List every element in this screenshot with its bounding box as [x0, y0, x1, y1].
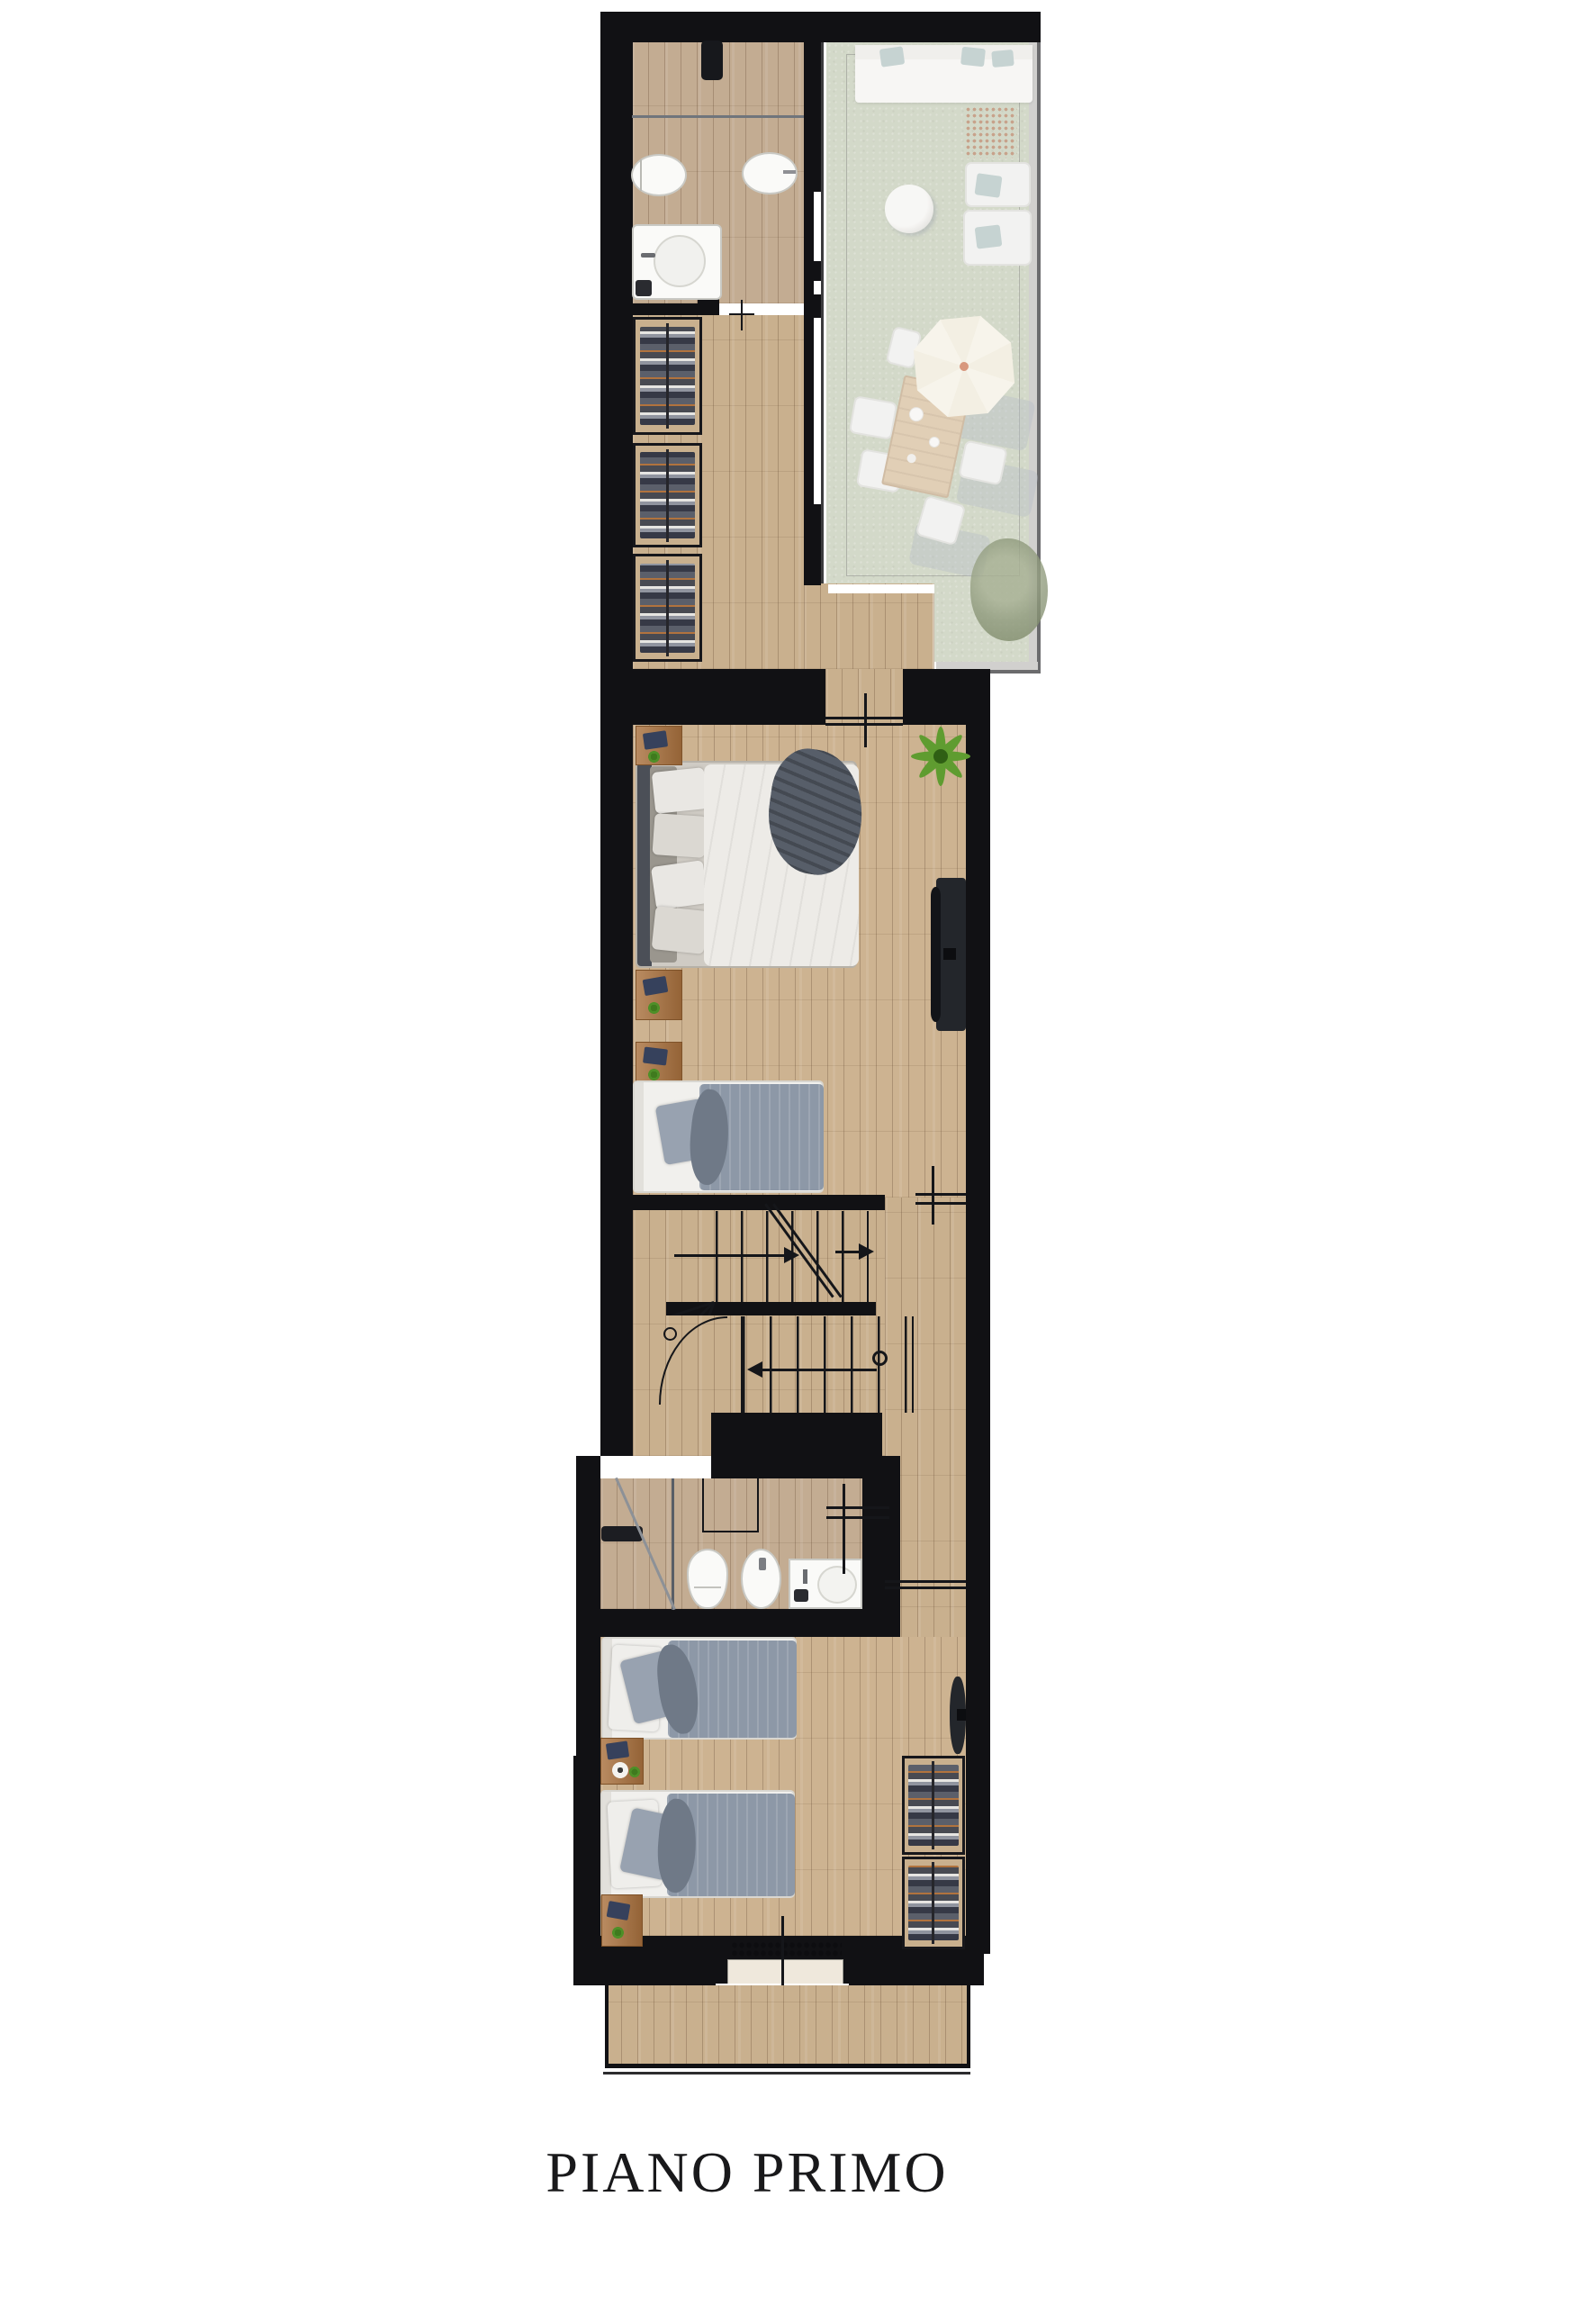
bidet-bottom-tap — [759, 1558, 766, 1570]
sink-top-basin — [654, 235, 706, 287]
wall-left-upper — [600, 12, 633, 723]
single-bed-mid — [633, 1080, 824, 1193]
radiator — [731, 1941, 842, 1958]
glazing-segment-3 — [814, 318, 821, 504]
double-bed-pillow-2 — [652, 813, 707, 858]
nightstand-2 — [636, 970, 682, 1020]
tv-bracket-bedroom2 — [957, 1709, 966, 1721]
nightstand-1 — [636, 726, 682, 765]
balcony-edge-right — [967, 1985, 970, 2068]
single-bed-a — [601, 1637, 797, 1740]
terrace-bush — [970, 538, 1048, 641]
balcony-floor — [605, 1985, 970, 2068]
window-right-line-1 — [885, 1580, 966, 1583]
page-title: PIANO PRIMO — [378, 2139, 1116, 2206]
wall-bathroom-divider-post — [698, 298, 719, 315]
dim-landing-h1 — [915, 1193, 966, 1196]
stairs-winder-fan — [633, 1211, 716, 1315]
dim-bedroom-door-h1 — [825, 717, 903, 719]
bidet-bottom-icon — [741, 1549, 781, 1609]
sink-top-soap — [636, 280, 652, 296]
bath2-shower-glass-v — [672, 1478, 674, 1610]
wardrobe-5-rail — [932, 1862, 934, 1944]
balcony-edge-bottom — [605, 2064, 970, 2068]
glazing-segment-1 — [814, 192, 821, 261]
wall-bath2-bottom — [600, 1609, 900, 1637]
glazing-segment-2 — [814, 281, 821, 294]
wardrobe-5 — [902, 1857, 965, 1949]
bidet-top-tap — [783, 170, 796, 174]
nightstand-1-plant — [647, 750, 661, 764]
sink-top-icon — [632, 224, 722, 300]
terrace — [826, 42, 1047, 673]
stairs-down-arrow-line — [762, 1369, 877, 1371]
dim-landing-h2 — [915, 1202, 966, 1205]
dim-bath2-v — [843, 1484, 845, 1574]
tv-unit-bedroom2 — [950, 1677, 966, 1754]
single-bed-mid-headboard — [635, 1082, 644, 1191]
wardrobe-4-rail — [932, 1761, 934, 1849]
sink-bottom-soap — [794, 1589, 808, 1602]
dim-tick-corridor-v — [741, 300, 743, 330]
floor-plan-page: PIANO PRIMO — [0, 0, 1596, 2305]
nightstand-5 — [601, 1894, 643, 1947]
plant-center — [933, 749, 948, 764]
sink-top-tap — [641, 253, 655, 258]
bedroom-plant — [907, 719, 974, 796]
nightstand-2-plant — [647, 1001, 661, 1015]
nightstand-5-plant — [611, 1926, 625, 1939]
single-bed-b — [600, 1790, 795, 1898]
stairs-up-arrowhead — [784, 1247, 799, 1263]
nightstand-4 — [600, 1738, 644, 1785]
tv-screen-bedroom — [931, 887, 941, 1022]
stairs-up-arrowhead-2 — [859, 1243, 874, 1260]
shower-head-icon — [701, 41, 723, 80]
wardrobe-2-rail — [666, 449, 669, 542]
wardrobe-3 — [633, 554, 702, 662]
dim-bath2-h2 — [826, 1516, 889, 1519]
bath2-mirror-outline — [702, 1478, 759, 1532]
nightstand-3-plant — [647, 1068, 661, 1081]
balcony-edge-left — [605, 1985, 609, 2068]
toilet-top-tank-line — [640, 159, 642, 191]
double-bed-pillow-3 — [651, 860, 708, 910]
wall-stairs-top — [633, 1195, 885, 1210]
double-bed — [636, 761, 857, 968]
sink-bottom-tap — [803, 1569, 807, 1584]
dim-bath2-h1 — [826, 1506, 889, 1509]
nightstand-4-book — [606, 1740, 629, 1759]
nightstand-2-book — [643, 976, 669, 996]
dim-bedroom-door-v — [864, 693, 867, 747]
bidet-top-icon — [742, 152, 798, 194]
nightstand-3-book — [643, 1046, 668, 1065]
wardrobe-3-rail — [666, 560, 669, 656]
terrace-slider-glass — [828, 584, 934, 593]
wall-under-stairs — [711, 1413, 882, 1478]
shower-glass-line — [632, 115, 804, 118]
sink-bottom-basin — [817, 1566, 857, 1604]
nightstand-1-book — [643, 730, 668, 749]
wardrobe-1 — [633, 317, 702, 435]
stairs-up-arrow-line — [674, 1254, 784, 1257]
stairs-start-circle — [872, 1351, 888, 1366]
wardrobe-2 — [633, 443, 702, 547]
stairs-down-arrowhead — [747, 1361, 762, 1378]
wall-left-lower-bump — [573, 1756, 600, 1954]
dim-bedroom-door-h2 — [825, 723, 903, 726]
dim-tick-corridor-h — [729, 313, 754, 315]
window-right-line-2 — [885, 1586, 966, 1589]
nightstand-5-book — [607, 1901, 631, 1921]
double-bed-pillow-4 — [652, 906, 708, 954]
wall-top — [600, 12, 1041, 42]
toilet-bottom-seat-line — [694, 1586, 721, 1588]
balcony-step — [727, 1959, 843, 1984]
balcony-outer-hairline — [603, 2072, 970, 2074]
nightstand-3 — [636, 1042, 682, 1085]
tv-stand-bedroom — [943, 948, 956, 960]
toilet-bottom-icon — [687, 1549, 728, 1609]
toilet-top-icon — [631, 154, 687, 196]
nightstand-4-flower — [612, 1762, 628, 1778]
wardrobe-4 — [902, 1756, 965, 1855]
title-block: PIANO PRIMO — [378, 2139, 1116, 2215]
sink-bottom-icon — [789, 1559, 862, 1609]
stairs-lower-flight — [741, 1316, 914, 1413]
stairs-up-arrow-line-2 — [835, 1251, 859, 1253]
tv-unit-bedroom — [936, 878, 966, 1031]
nightstand-4-plant — [628, 1766, 641, 1778]
wardrobe-1-rail — [666, 323, 669, 429]
wall-left-mid — [600, 723, 633, 1456]
double-bed-pillow-1 — [652, 767, 708, 814]
wall-right-main — [966, 673, 990, 1954]
door-hinge-circle — [663, 1327, 677, 1341]
wall-bedroom-top-left — [600, 669, 825, 725]
terrace-fade-upper — [826, 42, 1047, 583]
terrace-glass-edge — [821, 42, 824, 583]
